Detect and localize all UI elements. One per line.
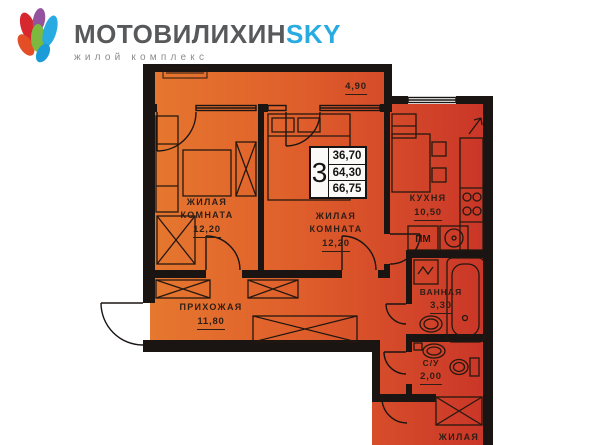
room-name: ЖИЛАЯ КОМНАТА — [309, 211, 362, 234]
lower-section-floor — [372, 340, 488, 445]
brand-logo: МОТОВИЛИХИНSKY жилой комплекс — [14, 5, 341, 63]
brand-text: МОТОВИЛИХИНSKY жилой комплекс — [74, 21, 341, 63]
room-label-kitchen: КУХНЯ 10,50 — [397, 192, 459, 221]
room-label-wc: С/У 2,00 — [406, 357, 456, 385]
room-name: ЖИЛАЯ — [439, 432, 479, 442]
room-label-living-1: ЖИЛАЯ КОМНАТА 12,20 — [164, 196, 250, 238]
room-name: ПРИХОЖАЯ — [179, 302, 242, 312]
room-label-hallway: ПРИХОЖАЯ 11,80 — [156, 301, 266, 330]
room-area: 2,00 — [420, 370, 442, 385]
brand-subtitle: жилой комплекс — [74, 52, 341, 63]
flame-logo-icon — [14, 5, 64, 63]
dishwasher-label: ПМ — [415, 234, 431, 245]
brand-name: МОТОВИЛИХИН — [74, 19, 286, 49]
room-area: 3,30 — [430, 299, 452, 314]
brand-name-accent: SKY — [286, 19, 341, 49]
page: МОТОВИЛИХИНSKY жилой комплекс — [0, 0, 601, 445]
stamp-room-count: 3 — [311, 148, 328, 197]
room-name: ЖИЛАЯ КОМНАТА — [180, 197, 233, 220]
room-area: 12,20 — [193, 223, 221, 238]
room-area: 12,20 — [322, 237, 350, 252]
room-name: С/У — [423, 358, 440, 368]
entry-door-arc — [101, 303, 143, 345]
stamp-areas: 36,70 64,30 66,75 — [328, 148, 365, 197]
stamp-total-area: 66,75 — [329, 181, 365, 197]
room-name: КУХНЯ — [410, 193, 447, 203]
room-label-lower-room: ЖИЛАЯ — [424, 431, 494, 444]
stamp-living-area: 36,70 — [329, 148, 365, 164]
room-area: 10,50 — [414, 206, 442, 221]
apartment-stamp: 3 36,70 64,30 66,75 — [309, 146, 367, 199]
balcony-area-label: 4,90 — [345, 79, 367, 95]
room-area: 11,80 — [197, 315, 224, 330]
room-label-living-2: ЖИЛАЯ КОМНАТА 12,20 — [293, 210, 379, 252]
room-area: 4,90 — [345, 80, 367, 95]
brand-title: МОТОВИЛИХИНSKY — [74, 21, 341, 47]
room-label-bathroom: ВАННАЯ 3,30 — [406, 286, 476, 314]
room-name: ВАННАЯ — [420, 287, 462, 297]
stamp-area: 64,30 — [329, 164, 365, 182]
